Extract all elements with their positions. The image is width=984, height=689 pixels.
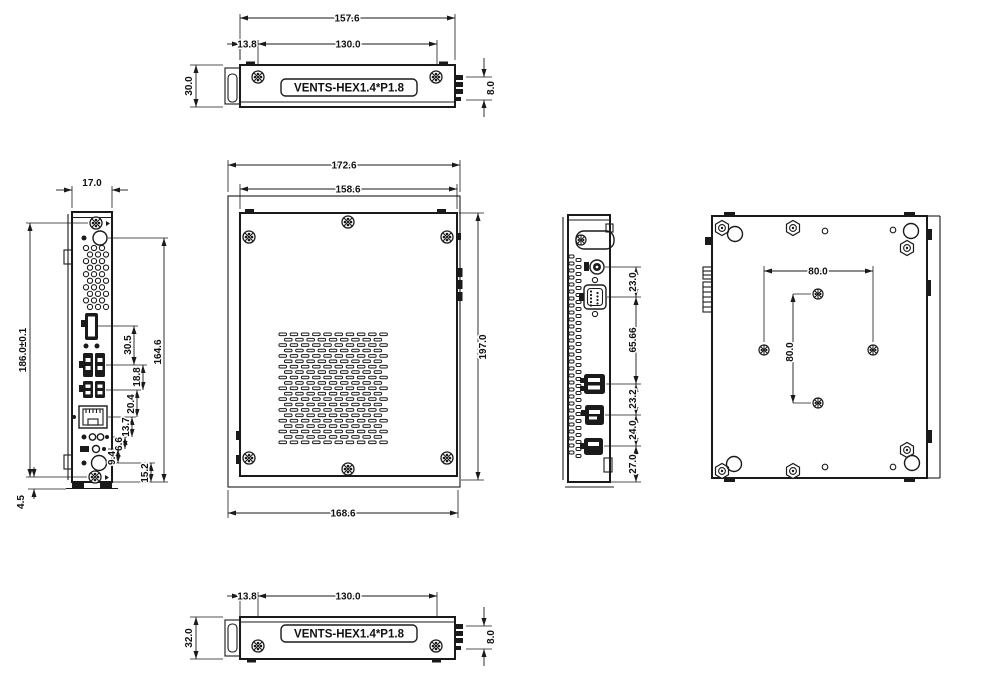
screw-icon xyxy=(342,216,354,228)
vesa-screw-icon xyxy=(868,345,878,355)
mount-tab xyxy=(904,478,915,482)
mount-tab xyxy=(724,478,735,482)
dim-label: 20.4 xyxy=(126,394,137,414)
dim-label: 30.5 xyxy=(123,335,134,355)
dim-label: 18.8 xyxy=(132,367,143,387)
screw-icon xyxy=(89,471,101,483)
led-indicator xyxy=(95,344,100,349)
screw-icon xyxy=(243,452,255,464)
dim-label: 9.4 xyxy=(107,451,118,465)
dim-label: 65.66 xyxy=(628,327,639,352)
mount-tab xyxy=(439,62,448,66)
chassis-underside xyxy=(712,216,927,478)
dim-label: 130.0 xyxy=(335,40,360,51)
screw-icon xyxy=(430,640,442,652)
dim-label: 186.0±0.1 xyxy=(18,327,29,372)
screw-icon xyxy=(430,71,442,83)
chassis-end-cap xyxy=(225,68,240,104)
left-side-view: 17.0 xyxy=(16,178,168,509)
screw-icon xyxy=(252,71,264,83)
dim-label: 8.0 xyxy=(486,81,497,95)
side-connector-bumps xyxy=(456,75,463,101)
hex-standoff-icon xyxy=(787,464,800,479)
dim-label: 8.0 xyxy=(486,630,497,644)
dim-label: 27.0 xyxy=(628,454,639,474)
side-connector-bumps xyxy=(456,624,463,650)
dim-label: 23.0 xyxy=(628,272,639,292)
top-view: 157.6 13.8 130.0 30.0 VENTS-HEX1.4*P1.8 xyxy=(184,14,497,118)
vesa-screw-icon xyxy=(759,345,769,355)
vesa-screw-icon xyxy=(813,289,823,299)
dim-label: 197.0 xyxy=(478,334,489,359)
foot xyxy=(247,659,256,663)
end-cap-slot xyxy=(228,74,237,102)
vent-label: VENTS-HEX1.4*P1.8 xyxy=(294,83,405,95)
foot xyxy=(100,483,112,488)
mount-tab xyxy=(245,209,254,213)
front-view: 172.6 158.6 197.0 168.6 xyxy=(228,160,489,520)
bottom-strip-view: 13.8 130.0 VENTS-HEX1.4*P1.8 32.0 8.0 xyxy=(184,592,497,667)
dimension-drawing: 157.6 13.8 130.0 30.0 VENTS-HEX1.4*P1.8 xyxy=(0,0,984,689)
mount-tab xyxy=(246,62,255,66)
chassis-end-cap xyxy=(225,620,240,656)
chassis-face xyxy=(240,213,457,476)
dim-label: 17.0 xyxy=(82,178,102,189)
dim-label: 13.8 xyxy=(237,592,257,603)
mount-tab xyxy=(904,212,915,216)
screw-icon xyxy=(441,231,453,243)
drawing-canvas: 157.6 13.8 130.0 30.0 VENTS-HEX1.4*P1.8 xyxy=(0,0,984,689)
screw-icon xyxy=(342,463,354,475)
dim-label: 13.7 xyxy=(121,417,132,437)
right-side-view: 23.0 65.66 23.2 24.0 27.0 xyxy=(563,215,641,487)
dim-label: 4.5 xyxy=(16,495,27,509)
dim-label: 6.6 xyxy=(114,437,125,451)
dim-label: 13.8 xyxy=(237,40,257,51)
screw-icon xyxy=(441,452,453,464)
foot xyxy=(72,483,84,488)
dim-label: 168.6 xyxy=(330,509,355,520)
dim-label: 164.6 xyxy=(153,339,164,364)
vesa-screw-icon xyxy=(813,398,823,408)
dim-label: 80.0 xyxy=(808,267,828,278)
hex-standoff-icon xyxy=(716,221,729,236)
led-indicator xyxy=(82,236,87,241)
dim-label: 23.2 xyxy=(628,389,639,409)
dim-label: 158.6 xyxy=(335,185,360,196)
foot xyxy=(432,659,441,663)
dim-label: 30.0 xyxy=(184,76,195,96)
screw-icon xyxy=(90,217,102,229)
screw-icon xyxy=(576,235,586,245)
screw-icon xyxy=(252,640,264,652)
mount-tab xyxy=(437,209,446,213)
dim-label: 32.0 xyxy=(184,628,195,648)
bottom-view: 80.0 80.0 xyxy=(703,212,940,482)
hex-standoff-icon xyxy=(901,241,914,256)
dim-label: 130.0 xyxy=(335,592,360,603)
end-cap-slot xyxy=(228,624,237,652)
hex-standoff-icon xyxy=(787,221,800,236)
dim-label: 172.6 xyxy=(331,161,356,172)
dim-label: 157.6 xyxy=(334,14,359,25)
dim-label: 24.0 xyxy=(628,420,639,440)
dim-label: 80.0 xyxy=(785,342,796,362)
led-indicator xyxy=(82,461,87,466)
mount-tab xyxy=(724,212,735,216)
led-indicator xyxy=(84,344,89,349)
dim-label: 15.2 xyxy=(140,463,151,483)
vent-label: VENTS-HEX1.4*P1.8 xyxy=(294,629,405,641)
screw-icon xyxy=(243,231,255,243)
